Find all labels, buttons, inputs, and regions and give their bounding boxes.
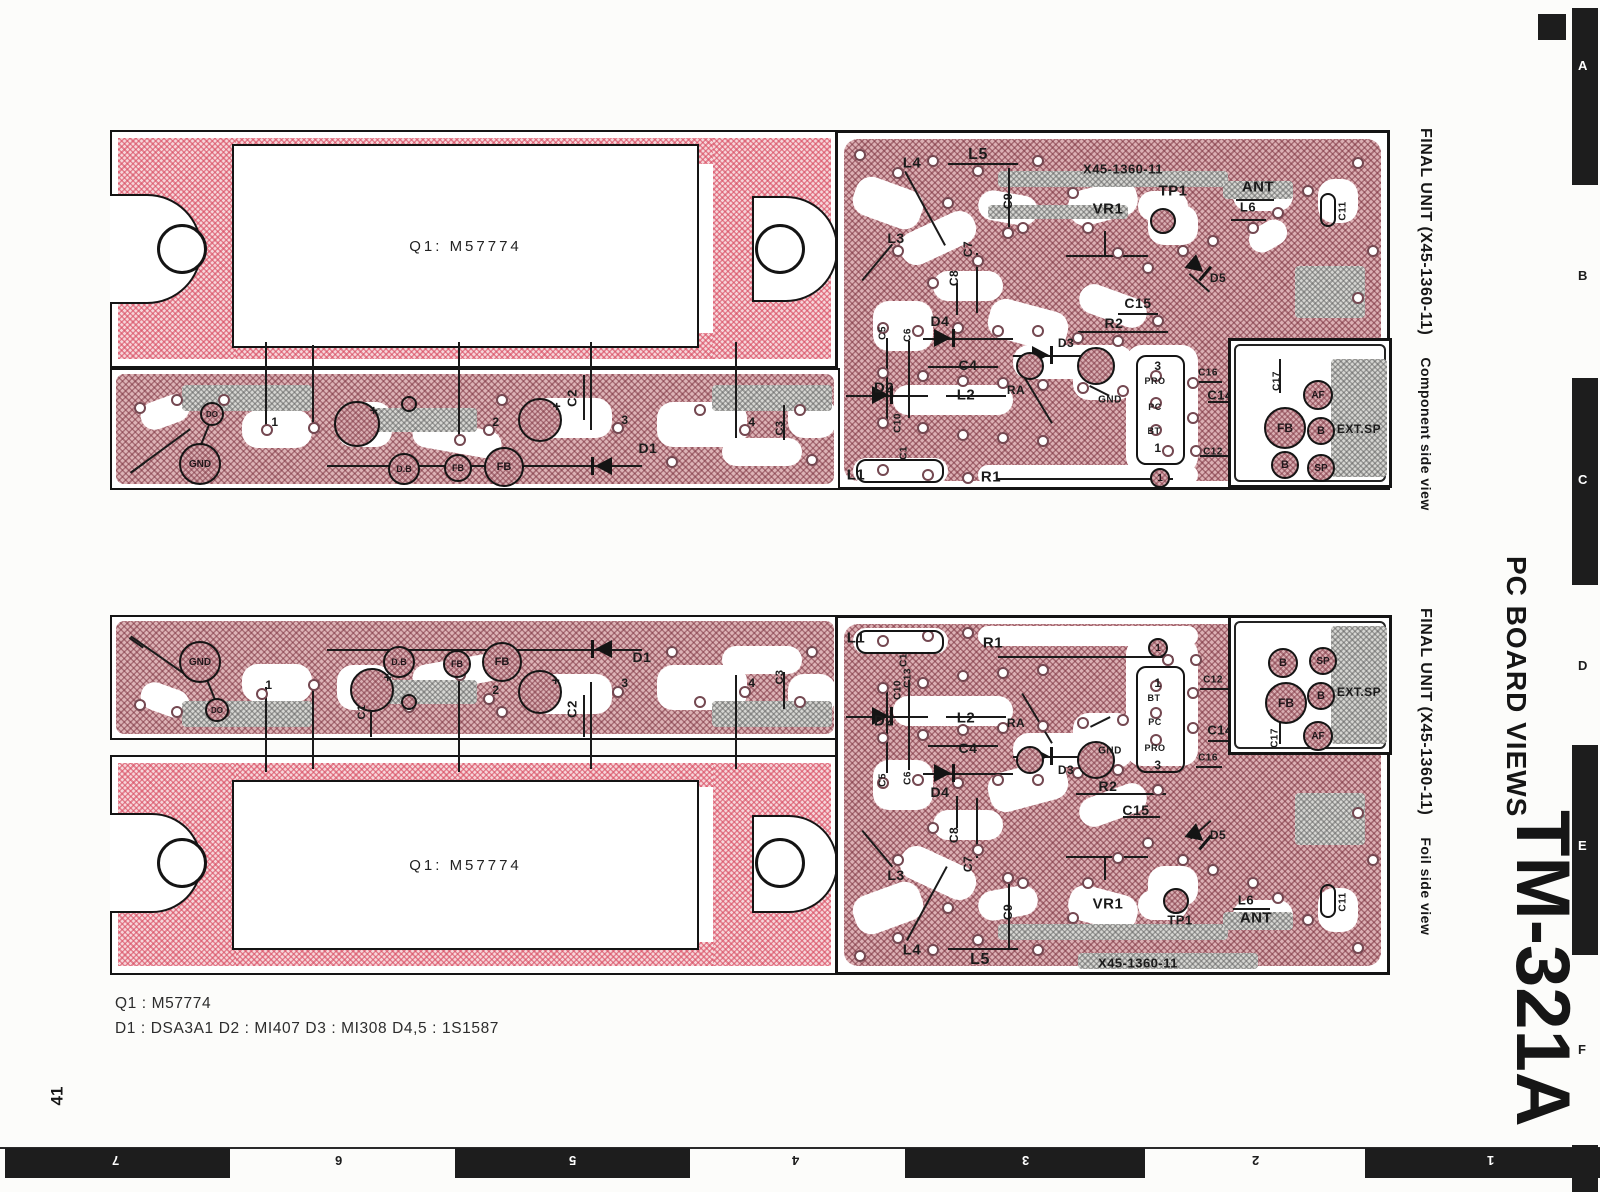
- component-outline: [1320, 884, 1336, 918]
- leader-line: [886, 688, 888, 773]
- ref-label-vr1: VR1: [1093, 201, 1124, 218]
- solder-pad: [854, 149, 866, 161]
- terminal-gnd: GND: [179, 443, 221, 485]
- ref-label-pro: PRO: [1144, 743, 1165, 753]
- terminal-b: B: [1307, 682, 1335, 710]
- ref-label-c1: C1: [356, 704, 368, 719]
- solder-pad: [1352, 292, 1364, 304]
- ref-label-c16: C16: [1198, 753, 1218, 764]
- silk-area: [712, 701, 832, 727]
- edge-number-3: 3: [1022, 1153, 1029, 1168]
- solder-pad: [1112, 852, 1124, 864]
- terminal-af: AF: [1303, 380, 1333, 410]
- decorative-shape: B: [1317, 425, 1325, 437]
- leader-line: [861, 244, 893, 281]
- ref-label-1: 1: [1154, 441, 1161, 455]
- ref-label-r2: R2: [1099, 778, 1118, 794]
- ref-label-4: 4: [748, 676, 755, 690]
- terminal-fb: FB: [1264, 407, 1306, 449]
- foil-side-q1-board: Q1: M57774: [110, 755, 840, 975]
- ref-label-1: 1: [271, 415, 278, 429]
- decorative-shape: FB: [1278, 696, 1294, 710]
- solder-pad: [992, 325, 1004, 337]
- leader-line: [948, 948, 1018, 950]
- ref-label-2: 2: [492, 415, 499, 429]
- solder-pad: [877, 367, 889, 379]
- bottom-trim-line: [0, 1147, 1600, 1149]
- ref-label-c9: C9: [1001, 193, 1015, 209]
- solder-pad: [972, 165, 984, 177]
- ref-label-pro: PRO: [1144, 376, 1165, 386]
- solder-pad: [308, 422, 320, 434]
- ref-label-c12: C12: [1203, 675, 1223, 686]
- ref-label-d2: D2: [874, 713, 894, 730]
- ref-label-c1: C1: [899, 653, 910, 667]
- decorative-shape: DO: [211, 706, 223, 715]
- ref-label-x45-1360-11: X45-1360-11: [1083, 162, 1163, 177]
- component-side-bottom-strip: GNDDOD.BFBFB1234++C2C3D1: [110, 368, 840, 490]
- ref-label-c2: C2: [565, 389, 580, 407]
- page-title: PC BOARD VIEWS: [1500, 556, 1532, 817]
- decorative-shape: D.B: [396, 464, 412, 474]
- leader-line: [312, 345, 314, 425]
- ref-label-l4: L4: [903, 155, 922, 172]
- decorative-shape: B: [1317, 690, 1325, 702]
- mounting-hole: [157, 838, 207, 888]
- leader-line: [956, 796, 958, 828]
- ref-label-d4: D4: [931, 784, 950, 800]
- leader-line: [370, 712, 372, 737]
- leader-line: [590, 682, 592, 769]
- leader-line: [1196, 766, 1222, 768]
- solder-pad: [942, 902, 954, 914]
- ref-label-bt: BT: [1148, 693, 1161, 703]
- ref-label-gnd: GND: [1098, 746, 1122, 757]
- solder-pad: [1272, 207, 1284, 219]
- ref-label-c3: C3: [774, 420, 786, 435]
- leader-line: [1104, 856, 1106, 880]
- pad-circle: [401, 694, 417, 710]
- solder-pad: [1067, 912, 1079, 924]
- silk-area: [367, 408, 477, 432]
- ref-label-c9: C9: [1001, 904, 1015, 920]
- leader-line: [265, 687, 267, 772]
- solder-pad: [927, 822, 939, 834]
- component-side-q1-board: Q1: M57774: [110, 130, 840, 368]
- solder-pad: [997, 667, 1009, 679]
- ref-label-l6: L6: [1240, 200, 1256, 215]
- terminal-gnd: GND: [179, 641, 221, 683]
- solder-pad: [134, 699, 146, 711]
- leader-line: [265, 342, 267, 428]
- solder-pad: [912, 325, 924, 337]
- silk-area: [1331, 359, 1387, 477]
- solder-pad: [927, 155, 939, 167]
- ref-label--: +: [384, 669, 393, 685]
- final-unit-label: FINAL UNIT (X45-1360-11): [1417, 608, 1434, 815]
- foil-side-top-strip: GNDDOD.BFBFB1234++C1C2C3D1: [110, 615, 840, 740]
- solder-pad: [972, 934, 984, 946]
- terminal-af: AF: [1303, 721, 1333, 751]
- ref-label-d5: D5: [1210, 271, 1226, 285]
- solder-pad: [134, 402, 146, 414]
- diode-icon: [930, 329, 966, 347]
- edge-number-4: 4: [792, 1153, 799, 1168]
- leader-line: [312, 689, 314, 769]
- solder-pad: [962, 627, 974, 639]
- ref-label-c13: C13: [903, 668, 914, 688]
- solder-pad: [1112, 247, 1124, 259]
- diode-icon: [580, 457, 616, 475]
- ref-label-vr1: VR1: [1093, 896, 1124, 913]
- solder-pad: [1177, 854, 1189, 866]
- solder-pad: [927, 944, 939, 956]
- solder-pad: [1037, 435, 1049, 447]
- ref-label-l3: L3: [887, 230, 904, 246]
- ref-label-1: 1: [1154, 676, 1161, 690]
- pad-circle: [1150, 208, 1176, 234]
- solder-pad: [892, 245, 904, 257]
- solder-pad: [1207, 235, 1219, 247]
- parts-caption-line2: D1 : DSA3A1 D2 : MI407 D3 : MI308 D4,5 :…: [115, 1020, 499, 1038]
- solder-pad: [1187, 377, 1199, 389]
- solder-pad: [877, 732, 889, 744]
- decorative-shape: B: [1281, 459, 1289, 471]
- silk-area: [182, 701, 312, 727]
- ref-label-3: 3: [621, 413, 628, 427]
- solder-pad: [997, 432, 1009, 444]
- solder-pad: [1037, 664, 1049, 676]
- leader-line: [861, 830, 893, 867]
- decorative-shape: 1: [1155, 643, 1161, 654]
- ref-label-2: 2: [492, 683, 499, 697]
- ref-label-x45-1360-11: X45-1360-11: [1098, 956, 1178, 971]
- ref-label-c10: C10: [893, 413, 904, 433]
- decorative-shape: DO: [206, 410, 218, 419]
- solder-pad: [171, 394, 183, 406]
- ref-label-c6: C6: [903, 771, 914, 785]
- ref-label-r1: R1: [983, 635, 1003, 652]
- solder-pad: [1352, 942, 1364, 954]
- edge-registration-block: [1572, 8, 1598, 185]
- ref-label-c3: C3: [774, 669, 786, 684]
- ref-label-l1: L1: [847, 630, 866, 647]
- solder-pad: [794, 696, 806, 708]
- solder-pad: [1077, 717, 1089, 729]
- copper-gap: [893, 385, 1013, 415]
- leader-line: [458, 342, 460, 438]
- ref-label-ant: ANT: [1240, 910, 1272, 927]
- ref-label-d3: D3: [1058, 763, 1074, 777]
- ref-label-c4: C4: [959, 740, 978, 756]
- decorative-shape: FB: [497, 461, 512, 473]
- solder-pad: [942, 197, 954, 209]
- solder-pad: [1190, 445, 1202, 457]
- solder-pad: [496, 394, 508, 406]
- solder-pad: [666, 646, 678, 658]
- solder-pad: [917, 422, 929, 434]
- pad-circle: [1016, 746, 1044, 774]
- decorative-shape: FB: [452, 463, 464, 473]
- solder-pad: [917, 370, 929, 382]
- solder-pad: [992, 774, 1004, 786]
- copper-gap: [848, 877, 927, 939]
- solder-pad: [1077, 382, 1089, 394]
- terminal-b: B: [1271, 451, 1299, 479]
- ref-label-l2: L2: [957, 710, 976, 727]
- ref-label-c11: C11: [1338, 892, 1349, 911]
- ref-label-tp1: TP1: [1158, 183, 1187, 200]
- solder-pad: [1032, 325, 1044, 337]
- ref-label-c17: C17: [1270, 728, 1281, 748]
- ref-label-4: 4: [748, 415, 755, 429]
- solder-pad: [1247, 877, 1259, 889]
- pad-circle: [401, 396, 417, 412]
- ref-label-ext-sp: EXT.SP: [1337, 422, 1381, 436]
- ref-label-c16: C16: [1198, 368, 1218, 379]
- leader-line: [583, 695, 585, 737]
- decorative-shape: SP: [1314, 463, 1327, 474]
- solder-pad: [1142, 837, 1154, 849]
- solder-pad: [1032, 774, 1044, 786]
- ref-label-ra: RA: [1007, 716, 1025, 730]
- terminal-do: DO: [200, 402, 224, 426]
- leader-line: [1066, 255, 1148, 257]
- ref-label-c5: C5: [878, 773, 889, 787]
- component-side-speaker-board: AFFBBBSPEXT.SPC17: [1228, 338, 1392, 488]
- q1-module-label: Q1: M57774: [409, 238, 522, 255]
- leader-line: [1231, 219, 1266, 221]
- copper-gap: [722, 646, 802, 674]
- ref-label-c12: C12: [1203, 447, 1223, 458]
- terminal-fb: FB: [482, 642, 522, 682]
- solder-pad: [1017, 877, 1029, 889]
- ref-label-l5: L5: [970, 951, 990, 969]
- solder-pad: [1367, 854, 1379, 866]
- copper-gap: [933, 271, 1003, 301]
- edge-letter-e: E: [1578, 838, 1587, 853]
- decorative-shape: SP: [1316, 656, 1329, 667]
- solder-pad: [1002, 872, 1014, 884]
- decorative-shape: AF: [1311, 731, 1324, 742]
- ref-label-c5: C5: [878, 326, 889, 340]
- ref-label-l5: L5: [968, 146, 988, 164]
- solder-pad: [917, 729, 929, 741]
- edge-letter-c: C: [1578, 472, 1587, 487]
- terminal-1: 1: [1148, 638, 1168, 658]
- edge-number-6: 6: [335, 1153, 342, 1168]
- solder-pad: [694, 696, 706, 708]
- final-unit-label: FINAL UNIT (X45-1360-11): [1417, 128, 1434, 335]
- decorative-shape: FB: [1277, 421, 1293, 435]
- leader-line: [1104, 231, 1106, 255]
- ref-label-pc: PC: [1148, 402, 1162, 412]
- pad-circle: [1077, 347, 1115, 385]
- solder-pad: [806, 646, 818, 658]
- copper-gap: [722, 438, 802, 466]
- ref-label-c4: C4: [959, 357, 978, 373]
- leader-line: [908, 693, 910, 770]
- decorative-shape: D.B: [391, 657, 407, 667]
- ref-label-d5: D5: [1210, 828, 1226, 842]
- decorative-shape: B: [1279, 657, 1287, 669]
- ref-label-ra: RA: [1007, 383, 1025, 397]
- leader-line: [1078, 331, 1168, 333]
- copper-gap: [933, 810, 1003, 840]
- decorative-shape: GND: [189, 459, 211, 470]
- ref-label-r1: R1: [981, 469, 1001, 486]
- ref-label-c8: C8: [947, 270, 961, 286]
- ref-label-c11: C11: [1338, 201, 1349, 220]
- ref-label-bt: BT: [1148, 426, 1161, 436]
- ref-label-c8: C8: [947, 827, 961, 843]
- solder-pad: [854, 950, 866, 962]
- edge-letter-a: A: [1578, 58, 1587, 73]
- solder-pad: [957, 670, 969, 682]
- solder-pad: [1177, 245, 1189, 257]
- solder-pad: [927, 277, 939, 289]
- solder-pad: [957, 375, 969, 387]
- solder-pad: [694, 404, 706, 416]
- foil-side-speaker-board: BSPFBBAFEXT.SPC17: [1228, 615, 1392, 755]
- solder-pad: [1082, 222, 1094, 234]
- parts-caption-line1: Q1 : M57774: [115, 995, 211, 1013]
- ref-label-l3: L3: [887, 867, 904, 883]
- solder-pad: [972, 844, 984, 856]
- ref-label--: +: [370, 402, 379, 418]
- solder-pad: [1352, 807, 1364, 819]
- ref-label-gnd: GND: [1098, 395, 1122, 406]
- terminal-b: B: [1268, 648, 1298, 678]
- terminal-fb: FB: [444, 454, 472, 482]
- solder-pad: [1352, 157, 1364, 169]
- ref-label-c17: C17: [1272, 371, 1283, 391]
- solder-pad: [1037, 720, 1049, 732]
- edge-letter-d: D: [1578, 658, 1587, 673]
- decorative-shape: FB: [495, 656, 510, 668]
- solder-pad: [962, 472, 974, 484]
- silk-area: [712, 385, 832, 411]
- decorative-shape: GND: [189, 657, 211, 668]
- ref-label--: +: [552, 672, 561, 688]
- solder-pad: [957, 429, 969, 441]
- view-label: Foil side view: [1418, 837, 1434, 935]
- solder-pad: [1032, 155, 1044, 167]
- pad-circle: [1016, 352, 1044, 380]
- solder-pad: [1190, 654, 1202, 666]
- component-outline: [856, 630, 944, 654]
- terminal-db: D.B: [388, 453, 420, 485]
- terminal-fb: FB: [443, 650, 471, 678]
- ref-label-c10: C10: [893, 680, 904, 700]
- solder-pad: [1142, 262, 1154, 274]
- mounting-hole: [755, 224, 805, 274]
- component-view-title: FINAL UNIT (X45-1360-11)Component side v…: [1416, 128, 1434, 511]
- registration-square: [1538, 14, 1566, 40]
- solder-pad: [1272, 892, 1284, 904]
- solder-pad: [1117, 714, 1129, 726]
- ref-label-c2: C2: [565, 700, 580, 718]
- foil-view-title: FINAL UNIT (X45-1360-11)Foil side view: [1416, 608, 1434, 935]
- solder-pad: [171, 706, 183, 718]
- ref-label-pc: PC: [1148, 717, 1162, 727]
- leader-line: [130, 462, 145, 474]
- leader-line: [956, 283, 958, 315]
- edge-letter-b: B: [1578, 268, 1587, 283]
- edge-letter-f: F: [1578, 1042, 1586, 1057]
- ref-label-c15: C15: [1124, 295, 1151, 311]
- leader-line: [735, 675, 737, 769]
- silk-area: [998, 924, 1228, 940]
- terminal-fb: FB: [1265, 682, 1307, 724]
- component-outline: [1320, 193, 1336, 227]
- solder-pad: [1032, 944, 1044, 956]
- ref-label-c7: C7: [961, 241, 975, 257]
- silk-area: [1295, 793, 1365, 845]
- solder-pad: [1207, 864, 1219, 876]
- ref-label-d3: D3: [1058, 336, 1074, 350]
- solder-pad: [912, 774, 924, 786]
- q1-module-outline: Q1: M57774: [232, 780, 699, 950]
- terminal-do: DO: [205, 698, 229, 722]
- solder-pad: [1247, 222, 1259, 234]
- ref-label-l4: L4: [903, 942, 922, 959]
- edge-number-2: 2: [1252, 1153, 1259, 1168]
- ref-label-l1: L1: [847, 467, 866, 484]
- ref-label-c6: C6: [903, 328, 914, 342]
- copper-gap: [893, 696, 1013, 726]
- mounting-hole: [157, 224, 207, 274]
- ref-label-d4: D4: [931, 313, 950, 329]
- leader-line: [1200, 688, 1228, 690]
- leader-line: [1118, 313, 1158, 315]
- leader-line: [946, 716, 1006, 718]
- terminal-sp: SP: [1309, 647, 1337, 675]
- copper-gap: [242, 664, 312, 702]
- leader-line: [735, 342, 737, 438]
- diode-icon: [580, 640, 616, 658]
- page-number: 41: [47, 1087, 67, 1106]
- solder-pad: [1187, 412, 1199, 424]
- diode-icon: [930, 764, 966, 782]
- solder-pad: [1002, 227, 1014, 239]
- ref-label-ant: ANT: [1242, 179, 1274, 196]
- ref-label-ext-sp: EXT.SP: [1337, 685, 1381, 699]
- solder-pad: [1112, 335, 1124, 347]
- ref-label-l2: L2: [957, 387, 976, 404]
- ref-label-c15: C15: [1122, 802, 1149, 818]
- copper-gap: [848, 172, 927, 234]
- terminal-1: 1: [1150, 468, 1170, 488]
- solder-pad: [308, 679, 320, 691]
- solder-pad: [1037, 379, 1049, 391]
- solder-pad: [877, 417, 889, 429]
- q1-module-outline: Q1: M57774: [232, 144, 699, 348]
- leader-line: [583, 375, 585, 420]
- decorative-shape: AF: [1311, 390, 1324, 401]
- solder-pad: [917, 677, 929, 689]
- solder-pad: [1302, 185, 1314, 197]
- view-label: Component side view: [1418, 357, 1434, 510]
- ref-label-3: 3: [1154, 758, 1161, 772]
- solder-pad: [1152, 315, 1164, 327]
- solder-pad: [454, 434, 466, 446]
- component-outline: [856, 459, 944, 483]
- solder-pad: [794, 404, 806, 416]
- leader-line: [908, 341, 910, 418]
- pad-circle: [1163, 888, 1189, 914]
- leader-line: [458, 677, 460, 772]
